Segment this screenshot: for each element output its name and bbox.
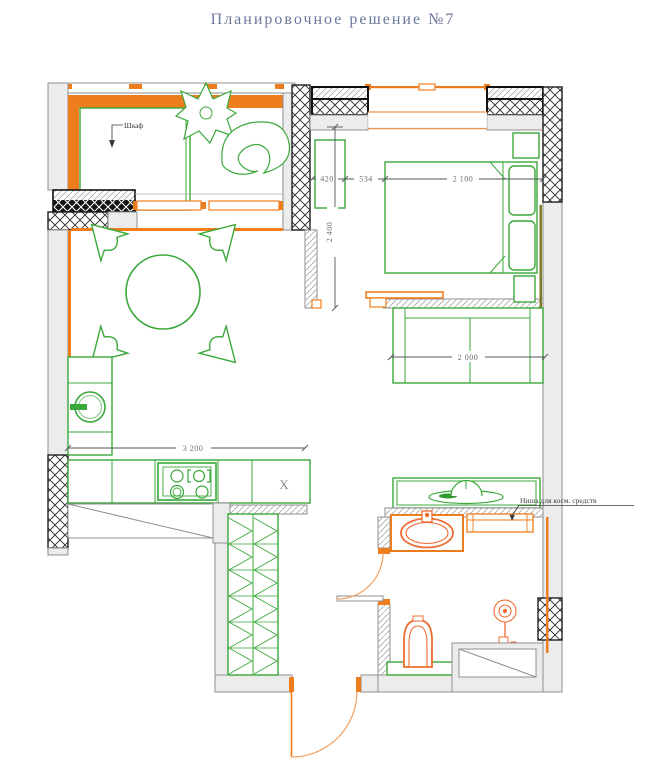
right-wall	[538, 87, 562, 692]
stove	[158, 463, 216, 500]
bedroom-window	[310, 84, 543, 130]
dim-534: 534	[359, 175, 373, 184]
cosmetics-niche	[467, 514, 533, 532]
toilet	[404, 616, 432, 667]
vent-shaft	[452, 643, 543, 692]
nightstand	[514, 276, 535, 302]
dining-set	[78, 211, 249, 376]
bedroom-furniture	[315, 133, 542, 308]
dim-420: 420	[320, 175, 334, 184]
dim-2000: 2 000	[458, 353, 479, 362]
floor-plan-canvas: Планировочное решение №7	[0, 0, 667, 770]
dining-table	[126, 255, 200, 329]
chair	[199, 211, 249, 261]
hall-cabinet	[228, 514, 278, 675]
bathroom	[337, 508, 549, 692]
page-title: Планировочное решение №7	[211, 11, 456, 28]
insulation-band	[68, 95, 295, 108]
pillow	[509, 221, 535, 270]
dim-2400: 2 400	[325, 222, 334, 243]
niche-label: Ниша для косм. средств	[520, 496, 597, 505]
chair	[199, 326, 249, 376]
faucet-icon	[70, 404, 87, 410]
nightstand	[513, 133, 539, 158]
pillow	[509, 166, 535, 215]
kitchen: X	[68, 357, 310, 503]
bathroom-sink	[391, 511, 463, 551]
bathroom-door	[337, 553, 383, 601]
wardrobe-2000	[393, 308, 543, 383]
wardrobe-room	[393, 308, 543, 383]
wardrobe-label: Шкаф	[124, 121, 143, 130]
floor-plan-page: Планировочное решение №7	[0, 0, 667, 770]
leaf-icon	[222, 122, 290, 174]
dressing-table	[393, 478, 540, 508]
entry-door	[289, 677, 361, 757]
dim-3200: 3 200	[183, 444, 204, 453]
x-mark: X	[279, 477, 289, 492]
dim-2100: 2 100	[453, 175, 474, 184]
